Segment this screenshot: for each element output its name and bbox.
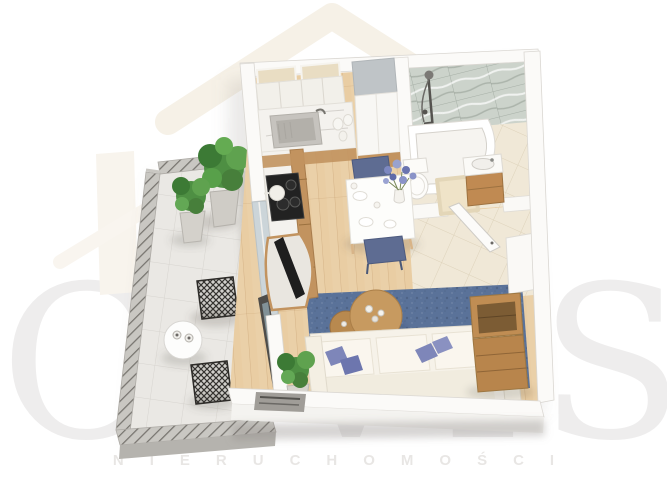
glass: [374, 202, 380, 208]
dining-chair-2: [364, 236, 406, 264]
cup: [366, 306, 373, 313]
real-estate-render: CIVIS NIERUCHOMOŚCI: [0, 0, 667, 500]
plate: [359, 218, 373, 227]
cup: [351, 183, 357, 189]
cup: [342, 322, 347, 327]
burner: [290, 197, 300, 207]
door-handle: [491, 242, 494, 245]
basin-faucet: [490, 158, 494, 162]
vanity: [463, 154, 504, 206]
window-threshold: [254, 392, 306, 412]
plate: [384, 220, 396, 228]
balcony-railing-cap: [146, 170, 160, 172]
chest-lower: [473, 335, 528, 392]
cup: [372, 316, 378, 322]
cup: [378, 310, 384, 316]
tall-cabinet-top: [352, 58, 397, 96]
lavender-flowers: [384, 166, 392, 174]
floor-plan-3d: [0, 0, 667, 500]
plate: [353, 192, 367, 201]
shower-head: [425, 71, 434, 80]
jar: [333, 118, 343, 130]
balcony-table: [164, 321, 202, 359]
tv-console: [266, 234, 313, 310]
south-wall-shadow: [232, 420, 545, 440]
sink-basin: [276, 118, 316, 144]
jar: [344, 115, 353, 126]
pot: [270, 186, 285, 201]
balcony-wire-chair-1: [197, 277, 238, 319]
burner: [286, 180, 296, 190]
jar: [339, 131, 347, 141]
